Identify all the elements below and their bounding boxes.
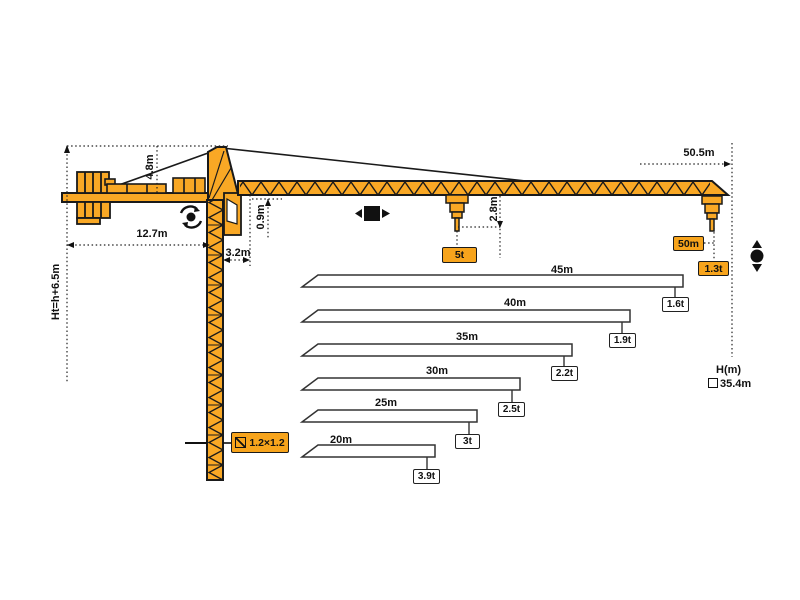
capacity-20m: 3.9t bbox=[413, 469, 440, 484]
square-section-icon bbox=[235, 437, 246, 448]
load-bar-25m bbox=[302, 410, 477, 422]
bar-length-20m: 20m bbox=[311, 433, 371, 447]
capacity-30m: 2.5t bbox=[498, 402, 525, 417]
height-marker-icon bbox=[708, 378, 718, 388]
counterjib-length-label: 12.7m bbox=[122, 227, 182, 241]
capacity-35m: 2.2t bbox=[551, 366, 578, 381]
jib bbox=[238, 181, 728, 195]
crane-load-diagram: Ht=h+6.5m 4.8m 0.9m 2.8m 12.7m 3.2m 50.5… bbox=[0, 0, 800, 600]
bar-length-25m: 25m bbox=[356, 396, 416, 410]
load-bar-45m bbox=[302, 275, 683, 287]
load-bar-30m bbox=[302, 378, 520, 390]
trolley-travel-icon bbox=[355, 206, 390, 221]
jib-tip-hook bbox=[702, 196, 722, 231]
tower-head-height-label: 4.8m bbox=[143, 125, 157, 209]
capacity-25m: 3t bbox=[455, 434, 480, 449]
slewing-icon bbox=[181, 206, 201, 228]
load-bar-35m bbox=[302, 344, 572, 356]
capacity-40m: 1.9t bbox=[609, 333, 636, 348]
max-capacity-tag: 5t bbox=[442, 247, 477, 263]
dimension-arrows bbox=[64, 145, 731, 263]
bar-length-30m: 30m bbox=[407, 364, 467, 378]
overall-jib-length-label: 50.5m bbox=[669, 146, 729, 160]
operator-cab bbox=[224, 193, 241, 235]
bar-length-35m: 35m bbox=[437, 330, 497, 344]
max-radius-tag: 50m bbox=[673, 236, 704, 251]
freestanding-height: 35.4m bbox=[708, 378, 751, 390]
capacity-45m: 1.6t bbox=[662, 297, 689, 312]
freestanding-height-value: 35.4m bbox=[720, 378, 751, 390]
bar-length-40m: 40m bbox=[485, 296, 545, 310]
mast-section-label: 1.2×1.2 bbox=[249, 437, 284, 449]
mast-section-tag: 1.2×1.2 bbox=[231, 432, 289, 453]
tip-capacity-tag: 1.3t bbox=[698, 261, 729, 276]
trolley-hook bbox=[446, 195, 468, 231]
height-axis-label: H(m) bbox=[716, 364, 741, 376]
hook-drop-label: 2.8m bbox=[487, 167, 501, 251]
load-bar-40m bbox=[302, 310, 630, 322]
bar-length-45m: 45m bbox=[532, 263, 592, 277]
tower-mast bbox=[207, 200, 223, 480]
total-height-label: Ht=h+6.5m bbox=[49, 250, 63, 334]
hoist-icon bbox=[751, 240, 764, 272]
slew-offset-label: 3.2m bbox=[213, 246, 263, 260]
